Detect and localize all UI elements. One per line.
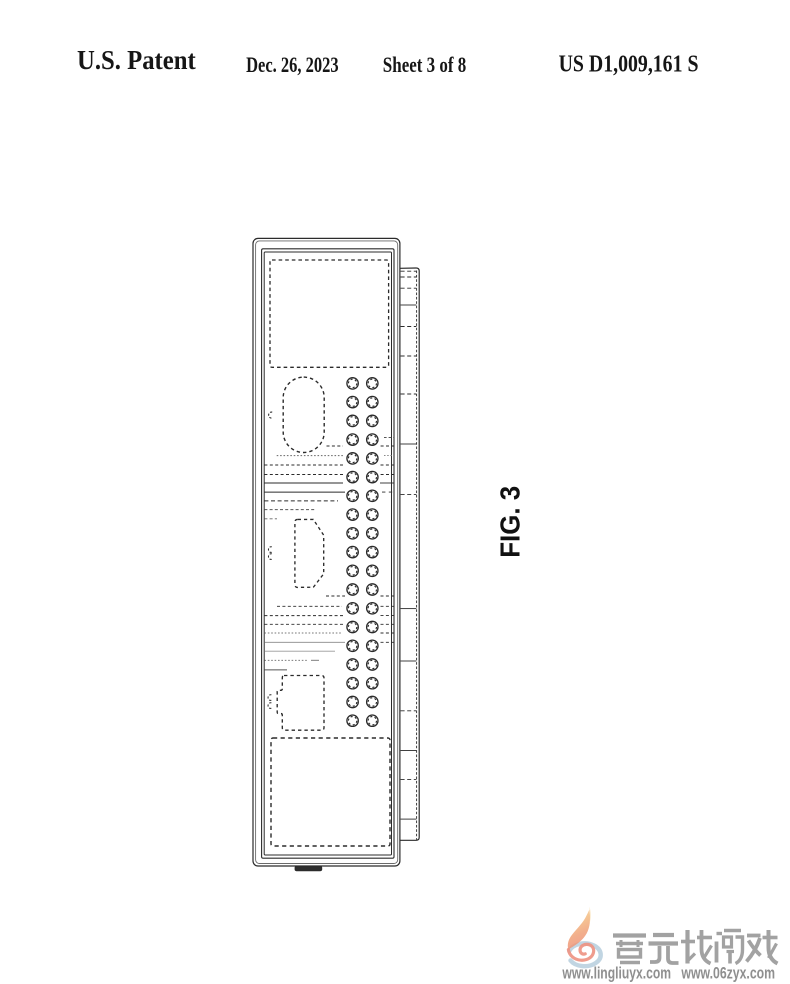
svg-text:www.lingliuyx.com: www.lingliuyx.com xyxy=(562,964,671,982)
svg-text:Sheet 3 of 8: Sheet 3 of 8 xyxy=(383,52,467,77)
svg-text:US D1,009,161 S: US D1,009,161 S xyxy=(559,51,699,78)
svg-text:U.S. Patent: U.S. Patent xyxy=(77,45,196,75)
svg-text:www.06zyx.com: www.06zyx.com xyxy=(681,964,775,982)
svg-text:Dec. 26, 2023: Dec. 26, 2023 xyxy=(246,52,339,77)
svg-text:FIG. 3: FIG. 3 xyxy=(495,486,526,558)
